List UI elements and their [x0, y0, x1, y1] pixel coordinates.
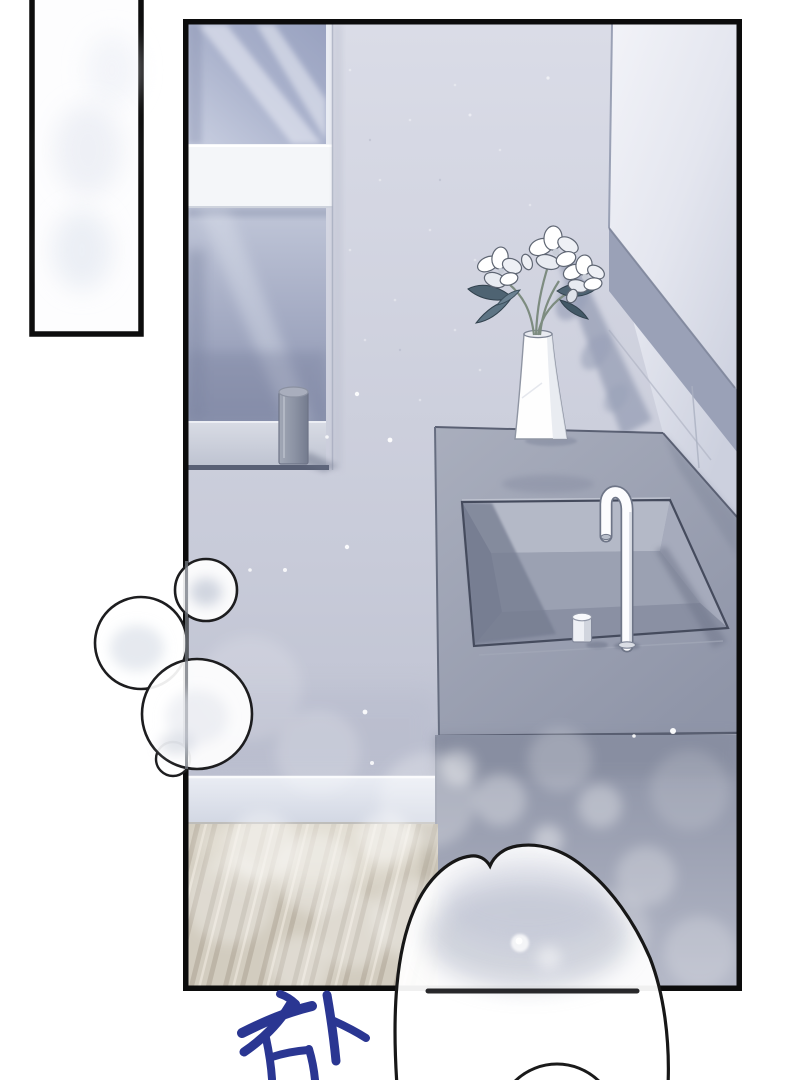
webtoon-page: 참 — [0, 0, 800, 1080]
faucet-base — [619, 642, 636, 648]
main-panel — [156, 22, 739, 995]
side-panel — [32, 0, 141, 334]
sink-counter — [434, 427, 737, 737]
soap-bubbles — [95, 559, 252, 776]
sfx-cham — [242, 994, 366, 1080]
shelf-band — [188, 144, 333, 208]
bathroom-scene — [156, 24, 737, 995]
mirror-niche — [188, 24, 342, 470]
comic-artwork — [0, 0, 800, 1080]
faucet-spout — [601, 534, 611, 539]
niche-base-line — [188, 465, 329, 470]
